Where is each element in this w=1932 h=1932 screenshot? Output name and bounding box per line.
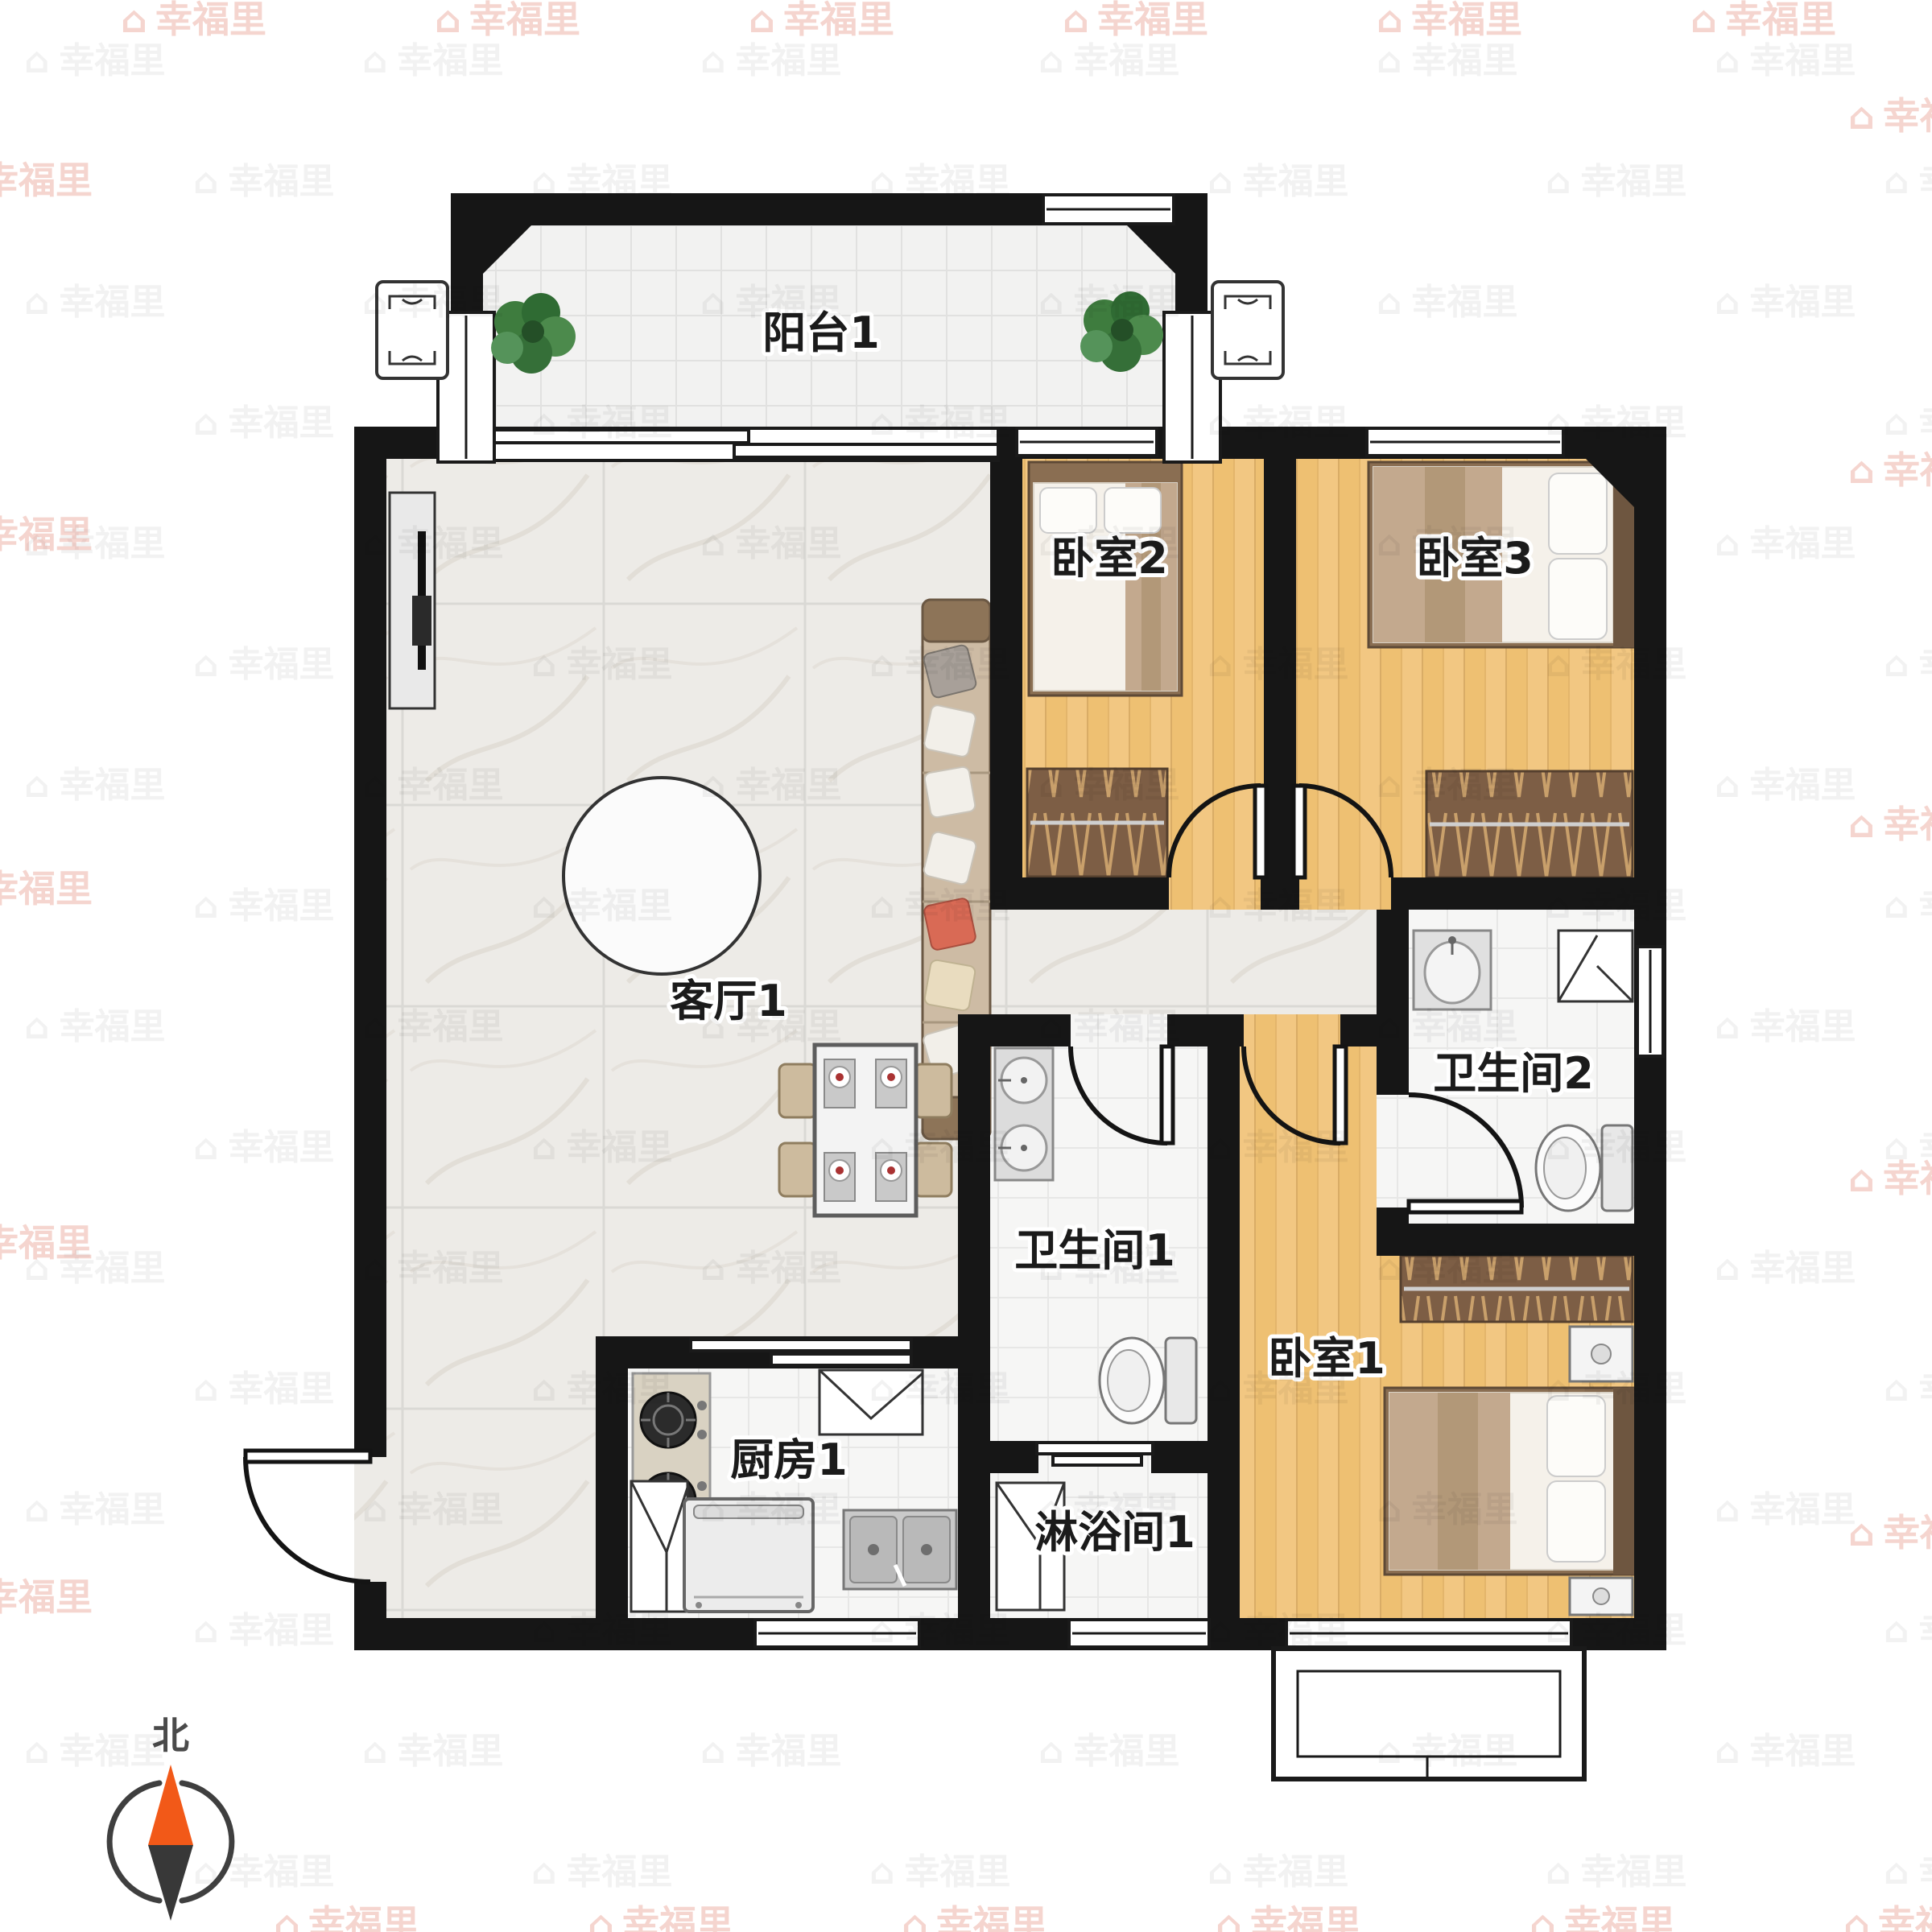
bedroom-1-floor-arm [1240,1046,1377,1256]
bay-window-bedroom-1 [1274,1620,1584,1779]
room-label-balcony-1: 阳台1 [762,308,880,358]
wardrobe-icon-bedroom-2 [1027,769,1167,877]
door-threshold [1071,1014,1167,1046]
svg-text:⌂幸福里: ⌂幸福里 [0,867,93,910]
svg-text:⌂幸福里: ⌂幸福里 [1843,1902,1932,1932]
window-kitchen [755,1620,919,1647]
room-label-bedroom-3: 卧室3 [1416,533,1534,584]
wall-segment [1377,1224,1666,1256]
compass-icon: 北 [109,1714,232,1921]
corner-shower-icon-bathroom-2 [1558,931,1633,1001]
double-sink-icon-bathroom-1 [995,1048,1053,1180]
svg-text:⌂幸福里: ⌂幸福里 [0,1221,93,1265]
room-label-bathroom-2: 卫生间2 [1433,1048,1594,1099]
svg-text:⌂幸福里: ⌂幸福里 [588,1902,733,1932]
wall-segment [1207,1014,1240,1618]
round-rug-icon [563,778,760,974]
cabinet-icon-kitchen-corner [631,1481,687,1612]
svg-text:⌂幸福里: ⌂幸福里 [1848,803,1932,846]
wall-segment [596,1336,628,1618]
sliding-door-balcony [483,428,998,460]
entry-threshold [354,1457,386,1582]
nightstand-icon [1570,1578,1633,1615]
floor-plan-image: ⌂幸福里 ⌂幸福里 [0,0,1932,1932]
wall-segment [354,427,386,1457]
door-threshold [1244,1014,1340,1046]
svg-text:⌂幸福里: ⌂幸福里 [274,1902,419,1932]
svg-text:⌂幸福里: ⌂幸福里 [749,0,894,41]
svg-text:⌂幸福里: ⌂幸福里 [902,1902,1047,1932]
wall-segment [1167,1014,1207,1046]
wall-segment [1151,1441,1207,1473]
room-label-kitchen-1: 厨房1 [730,1435,848,1485]
wall-segment [958,1014,990,1618]
svg-text:⌂幸福里: ⌂幸福里 [1377,0,1522,41]
kitchen-sink-icon [844,1510,956,1589]
door-threshold [1169,877,1261,910]
wall-segment [1340,1014,1409,1046]
svg-text:⌂幸福里: ⌂幸福里 [1063,0,1208,41]
ac-unit-icon-right [1212,282,1283,378]
hallway-floor [990,910,1377,1014]
wall-segment [990,1441,1038,1473]
toilet-icon-bathroom-1 [1100,1338,1196,1423]
wall-segment [1264,459,1296,910]
wardrobe-icon-bedroom-1 [1401,1256,1633,1322]
door-threshold [1377,1095,1409,1207]
entry-door [246,1451,370,1582]
tv-cabinet-icon [390,493,435,708]
ac-unit-icon-left [377,282,448,378]
panel-icon-kitchen-entry [819,1370,923,1435]
wall-segment [1391,877,1666,910]
wall-segment [1207,1014,1244,1046]
compass-needle-north [148,1765,193,1845]
svg-text:⌂幸福里: ⌂幸福里 [1848,1157,1932,1200]
north-label: 北 [152,1714,189,1757]
svg-text:⌂幸福里: ⌂幸福里 [1690,0,1836,41]
room-label-bathroom-1: 卫生间1 [1014,1225,1175,1276]
compass-needle-south [148,1845,193,1921]
svg-text:⌂幸福里: ⌂幸福里 [1848,448,1932,492]
bed-icon-bedroom-1 [1385,1388,1634,1575]
svg-text:⌂幸福里: ⌂幸福里 [0,159,93,202]
room-label-living-room-1: 客厅1 [670,976,787,1026]
sink-icon-bathroom-2 [1414,931,1491,1009]
wardrobe-icon-bedroom-3 [1426,771,1633,877]
svg-text:⌂幸福里: ⌂幸福里 [121,0,266,41]
svg-text:⌂幸福里: ⌂幸福里 [0,513,93,556]
svg-text:⌂幸福里: ⌂幸福里 [435,0,580,41]
svg-text:⌂幸福里: ⌂幸福里 [1848,94,1932,138]
wall-segment [1377,910,1409,1095]
fridge-icon [684,1499,813,1612]
floor-plan-canvas: ⌂幸福里 ⌂幸福里 [0,0,1932,1932]
toilet-icon-bathroom-2 [1536,1125,1633,1211]
svg-text:⌂幸福里: ⌂幸福里 [1216,1902,1361,1932]
room-label-bedroom-2: 卧室2 [1051,533,1168,584]
door-threshold [1299,877,1391,910]
window-bedroom-3 [1367,428,1563,456]
wall-segment [990,459,1022,910]
room-label-bedroom-1: 卧室1 [1268,1333,1385,1384]
sliding-opening-shower [1037,1443,1153,1465]
nightstand-icon [1570,1327,1633,1381]
svg-text:⌂幸福里: ⌂幸福里 [1848,1511,1932,1554]
window-bedroom-2 [1017,428,1157,456]
window-balcony-top [1043,195,1174,224]
room-label-shower-room-1: 淋浴间1 [1034,1507,1195,1558]
svg-text:⌂幸福里: ⌂幸福里 [0,1575,93,1619]
window-shower-room [1069,1620,1209,1647]
wall-segment [1261,877,1299,910]
svg-text:⌂幸福里: ⌂幸福里 [1529,1902,1675,1932]
wall-segment [990,877,1169,910]
window-bathroom-2 [1637,947,1663,1056]
